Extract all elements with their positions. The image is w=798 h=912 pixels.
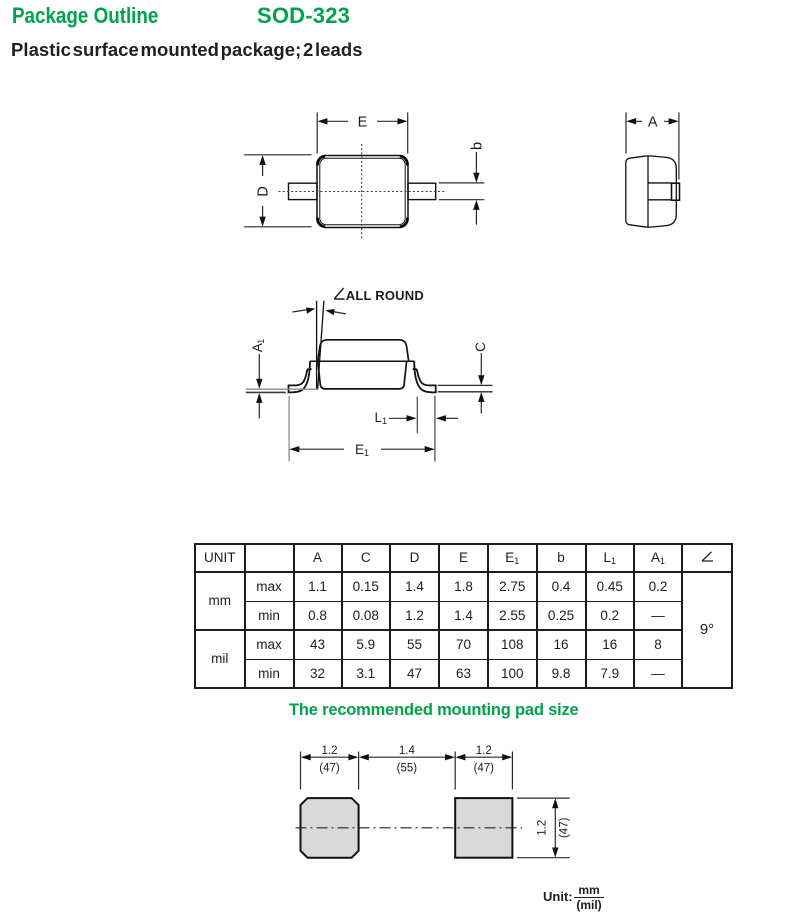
svg-text:A1: A1: [250, 339, 266, 353]
svg-text:L1: L1: [375, 410, 388, 426]
svg-text:1.2: 1.2: [476, 745, 492, 757]
svg-text:A: A: [648, 115, 658, 131]
svg-text:(47): (47): [474, 762, 495, 774]
svg-text:E1: E1: [355, 442, 369, 458]
svg-text:C: C: [473, 342, 488, 352]
svg-text:(55): (55): [397, 762, 418, 774]
svg-text:b: b: [469, 142, 485, 150]
svg-text:(47): (47): [558, 817, 570, 838]
svg-text:(47): (47): [319, 762, 340, 774]
svg-text:ALL ROUND: ALL ROUND: [346, 288, 424, 303]
svg-text:E: E: [358, 115, 368, 131]
svg-text:1.4: 1.4: [399, 745, 416, 757]
svg-text:D: D: [256, 186, 272, 196]
svg-text:1.2: 1.2: [537, 820, 549, 836]
svg-text:1.2: 1.2: [322, 745, 338, 757]
